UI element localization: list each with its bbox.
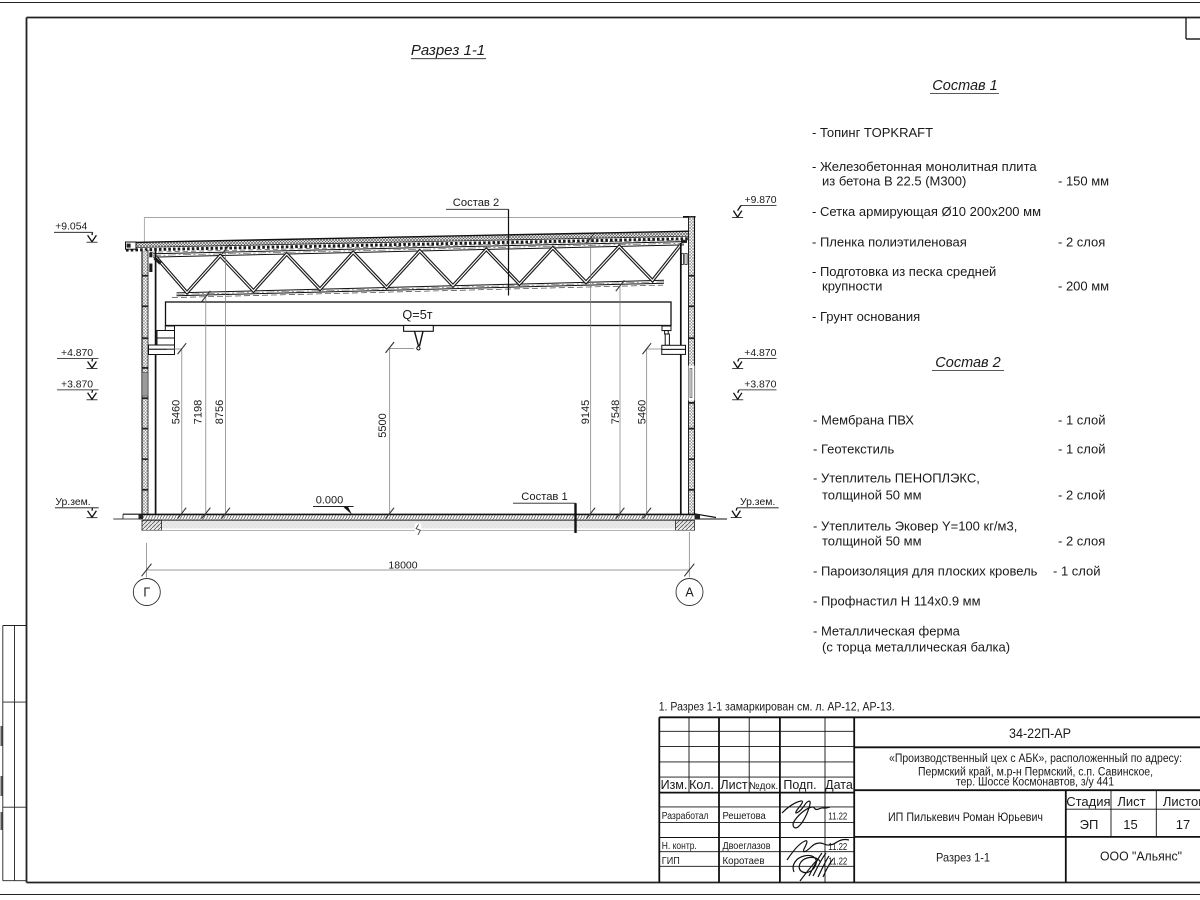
svg-text:«Производственный цех с АБК»,: «Производственный цех с АБК», расположен…: [889, 753, 1182, 765]
svg-text:- Грунт основания: - Грунт основания: [812, 309, 920, 324]
svg-text:- 1 слой: - 1 слой: [1058, 442, 1106, 457]
svg-text:толщиной 50 мм: толщиной 50 мм: [822, 488, 922, 503]
svg-text:Состав 2: Состав 2: [935, 355, 1000, 371]
svg-text:17: 17: [1176, 817, 1190, 832]
svg-text:- Топинг TOPKRAFT: - Топинг TOPKRAFT: [812, 125, 933, 140]
svg-text:+4.870: +4.870: [61, 348, 93, 359]
svg-text:- Пароизоляция для плоских кро: - Пароизоляция для плоских кровель: [813, 564, 1038, 579]
svg-text:- 2 слой: - 2 слой: [1058, 488, 1106, 503]
svg-text:11.22: 11.22: [828, 812, 847, 823]
svg-text:Состав 1: Состав 1: [932, 78, 997, 94]
svg-text:Лист: Лист: [720, 778, 747, 792]
svg-text:Коротаев: Коротаев: [723, 856, 765, 867]
svg-text:7198: 7198: [193, 400, 205, 424]
svg-text:- 1 слой: - 1 слой: [1058, 413, 1106, 428]
svg-text:Решетова: Решетова: [723, 811, 767, 822]
svg-text:Г: Г: [143, 586, 150, 600]
svg-text:5460: 5460: [171, 400, 183, 424]
svg-text:Разрез 1-1: Разрез 1-1: [411, 42, 485, 59]
svg-text:11.22: 11.22: [828, 842, 847, 853]
svg-text:- Сетка армирующая Ø10 200x200: - Сетка армирующая Ø10 200x200 мм: [812, 204, 1041, 219]
svg-text:+4.870: +4.870: [744, 348, 776, 359]
svg-text:- Пленка полиэтиленовая: - Пленка полиэтиленовая: [812, 235, 967, 250]
svg-text:тер. Шоссе Космонавтов, з/у 44: тер. Шоссе Космонавтов, з/у 441: [956, 777, 1114, 789]
svg-text:Дата: Дата: [825, 778, 853, 792]
svg-text:- Профнастил Н 114x0.9 мм: - Профнастил Н 114x0.9 мм: [813, 594, 981, 609]
svg-text:- Мембрана ПВХ: - Мембрана ПВХ: [813, 413, 914, 428]
svg-text:ИП Пилькевич Роман Юрьевич: ИП Пилькевич Роман Юрьевич: [888, 812, 1043, 824]
svg-text:8756: 8756: [214, 400, 226, 424]
svg-text:- Подготовка из песка средней: - Подготовка из песка средней: [812, 264, 996, 279]
svg-text:Состав 1: Состав 1: [521, 491, 567, 503]
svg-text:крупности: крупности: [822, 279, 882, 294]
svg-text:(с торца металлическая балка): (с торца металлическая балка): [822, 640, 1010, 655]
svg-text:- 1 слой: - 1 слой: [1053, 564, 1101, 579]
svg-text:Ур.зем.: Ур.зем.: [55, 497, 90, 508]
svg-text:ООО "Альянс": ООО "Альянс": [1100, 849, 1182, 864]
svg-text:Ур.зем.: Ур.зем.: [740, 497, 775, 508]
svg-text:9145: 9145: [580, 400, 592, 424]
svg-text:Q=5т: Q=5т: [402, 308, 432, 322]
svg-text:0.000: 0.000: [316, 494, 344, 506]
svg-text:- 2 слоя: - 2 слоя: [1058, 534, 1105, 549]
svg-text:34-22П-АР: 34-22П-АР: [1009, 725, 1071, 741]
svg-text:- Утеплитель ПЕНОПЛЭКС,: - Утеплитель ПЕНОПЛЭКС,: [813, 471, 980, 486]
svg-text:толщиной 50 мм: толщиной 50 мм: [822, 534, 922, 549]
svg-text:+9.870: +9.870: [745, 195, 777, 206]
svg-text:Лист: Лист: [1117, 794, 1145, 809]
svg-text:из бетона В 22.5 (М300): из бетона В 22.5 (М300): [822, 174, 966, 189]
svg-text:Изм.: Изм.: [661, 778, 688, 792]
svg-text:7548: 7548: [610, 400, 622, 424]
svg-text:Подп.: Подп.: [783, 778, 816, 792]
svg-text:- 2 слоя: - 2 слоя: [1058, 235, 1105, 250]
svg-text:Стадия: Стадия: [1066, 794, 1110, 809]
svg-text:- Железобетонная монолитная п: - Железобетонная монолитная плита: [812, 159, 1037, 174]
svg-text:1. Разрез 1-1 замаркирован см.: 1. Разрез 1-1 замаркирован см. л. АР-12,…: [659, 700, 895, 714]
svg-text:Кол.: Кол.: [689, 778, 714, 792]
svg-text:+3.870: +3.870: [744, 380, 776, 391]
svg-text:5460: 5460: [637, 400, 649, 424]
svg-text:Состав 2: Состав 2: [453, 197, 499, 209]
svg-text:- Утеплитель Эковер Y=100 кг/м: - Утеплитель Эковер Y=100 кг/м3,: [813, 519, 1017, 534]
svg-text:+9.054: +9.054: [55, 222, 87, 233]
svg-text:- Геотекстиль: - Геотекстиль: [813, 442, 894, 457]
svg-text:18000: 18000: [388, 559, 417, 571]
svg-text:5500: 5500: [377, 413, 389, 437]
svg-text:Н. контр.: Н. контр.: [662, 841, 697, 852]
svg-text:Двоеглазов: Двоеглазов: [723, 841, 771, 852]
svg-text:- 200 мм: - 200 мм: [1058, 279, 1109, 294]
svg-text:- 150 мм: - 150 мм: [1058, 174, 1109, 189]
svg-text:ЭП: ЭП: [1080, 817, 1099, 832]
svg-text:Разрез 1-1: Разрез 1-1: [936, 851, 990, 865]
svg-text:Разработал: Разработал: [662, 810, 709, 822]
svg-text:ГИП: ГИП: [662, 856, 680, 867]
svg-text:15: 15: [1123, 817, 1137, 832]
svg-text:+3.870: +3.870: [61, 380, 93, 391]
svg-text:№док.: №док.: [749, 781, 778, 792]
svg-text:Листов: Листов: [1163, 794, 1200, 809]
svg-text:- Металлическая ферма: - Металлическая ферма: [813, 624, 961, 639]
svg-text:А: А: [685, 586, 694, 600]
